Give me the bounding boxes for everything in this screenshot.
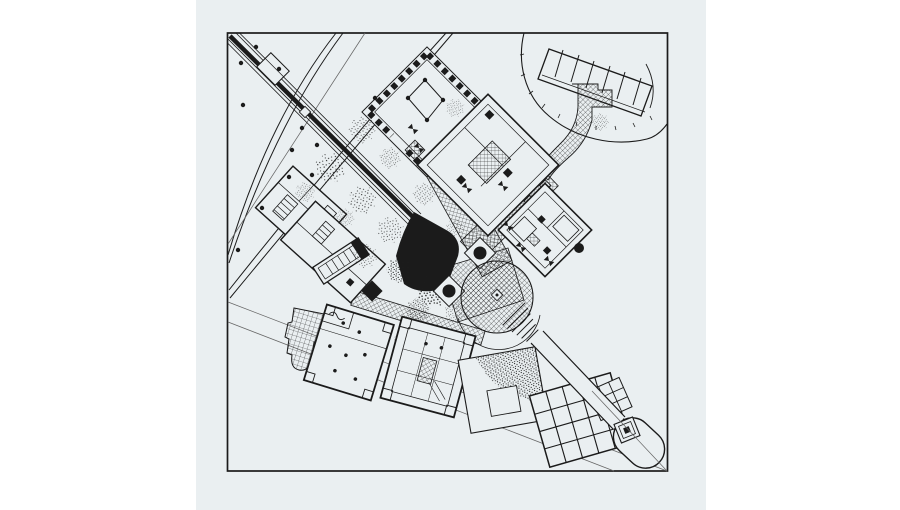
garden-parcel — [458, 347, 548, 433]
court-tree-disc — [574, 243, 584, 253]
screenshot — [0, 0, 900, 510]
site-plan-figure — [0, 0, 900, 510]
